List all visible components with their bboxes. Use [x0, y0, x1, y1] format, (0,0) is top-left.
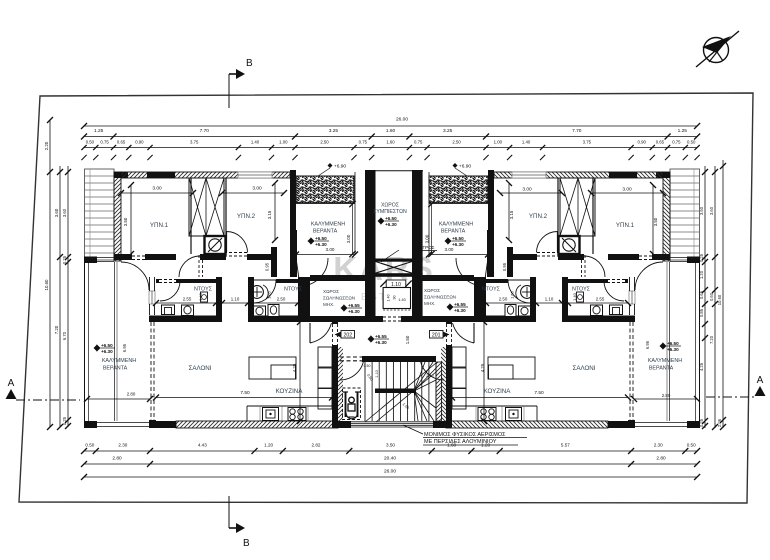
svg-text:ΚΟΥΖΙΝΑ: ΚΟΥΖΙΝΑ	[276, 388, 304, 395]
svg-text:0.60: 0.60	[709, 292, 714, 301]
svg-text:3.00: 3.00	[152, 186, 162, 192]
svg-text:3.50: 3.50	[123, 217, 128, 226]
svg-text:201: 201	[432, 333, 441, 339]
svg-text:3.00: 3.00	[346, 234, 351, 243]
svg-text:0.90: 0.90	[638, 140, 647, 145]
svg-text:+6.50: +6.50	[385, 216, 397, 221]
svg-text:ΥΓΡΟΣ: ΥΓΡΟΣ	[419, 245, 434, 250]
svg-text:ΚΟΥΖΙΝΑ: ΚΟΥΖΙΝΑ	[484, 388, 512, 395]
svg-text:6.70: 6.70	[62, 331, 67, 340]
svg-text:A: A	[757, 375, 764, 386]
svg-text:3.25: 3.25	[443, 128, 453, 134]
svg-text:ΚΑΛΥΜΜΕΝΗ: ΚΑΛΥΜΜΕΝΗ	[648, 358, 682, 364]
svg-text:3.00: 3.00	[522, 187, 532, 193]
svg-text:ΝΤΟΥΣ: ΝΤΟΥΣ	[482, 287, 501, 293]
svg-text:A: A	[8, 378, 15, 389]
svg-text:5.57: 5.57	[561, 443, 570, 448]
svg-text:1.25: 1.25	[678, 128, 688, 134]
svg-text:ΣΑΛΟΝΙ: ΣΑΛΟΝΙ	[189, 365, 212, 372]
svg-text:ΥΠΝ.1: ΥΠΝ.1	[150, 222, 169, 229]
svg-text:ΒΕΡΑΝΤΑ: ΒΕΡΑΝΤΑ	[313, 229, 338, 235]
svg-text:2.50: 2.50	[277, 297, 286, 302]
svg-text:1.65: 1.65	[267, 290, 272, 299]
svg-text:26.00: 26.00	[396, 117, 408, 123]
svg-text:+6.50: +6.50	[667, 341, 679, 346]
svg-text:1.10: 1.10	[231, 297, 240, 302]
svg-text:7.20: 7.20	[54, 325, 59, 334]
svg-text:+6.50: +6.50	[101, 343, 113, 348]
svg-text:ΧΩΡΟΣ: ΧΩΡΟΣ	[323, 289, 339, 294]
svg-text:1.10: 1.10	[375, 370, 379, 377]
svg-text:2.80: 2.80	[662, 393, 671, 398]
svg-text:2.50: 2.50	[452, 140, 461, 145]
svg-text:ΣΥΜΠΙΕΣΤΩΝ: ΣΥΜΠΙΕΣΤΩΝ	[373, 209, 407, 215]
svg-text:+6.30: +6.30	[385, 222, 397, 227]
svg-text:0.25: 0.25	[62, 255, 67, 264]
svg-text:4.43: 4.43	[198, 443, 207, 448]
svg-text:3.60: 3.60	[54, 208, 59, 217]
svg-text:7.20: 7.20	[709, 335, 714, 344]
svg-text:ΜΕ ΠΕΡΣΙΔΕΣ ΑΛΟΥΜΙΝΙΟΥ: ΜΕ ΠΕΡΣΙΔΕΣ ΑΛΟΥΜΙΝΙΟΥ	[424, 439, 497, 445]
svg-text:0.95: 0.95	[502, 262, 507, 271]
svg-text:1.40: 1.40	[198, 292, 203, 301]
svg-text:+6.50: +6.50	[315, 236, 327, 241]
svg-text:ΜΗΧ.: ΜΗΧ.	[323, 302, 334, 307]
svg-text:3.00: 3.00	[425, 234, 430, 243]
svg-text:+6.90: +6.90	[459, 164, 471, 170]
svg-text:B: B	[243, 538, 250, 549]
svg-text:ΜΗΧ.: ΜΗΧ.	[424, 301, 435, 306]
svg-text:4.25: 4.25	[480, 363, 485, 372]
svg-text:3.75: 3.75	[583, 140, 592, 145]
svg-text:2.80: 2.80	[127, 392, 136, 397]
svg-text:7.70: 7.70	[200, 128, 210, 134]
svg-text:3.60: 3.60	[709, 206, 714, 215]
svg-text:1.40: 1.40	[398, 298, 405, 302]
svg-text:2.55: 2.55	[596, 297, 605, 302]
svg-text:2.82: 2.82	[312, 443, 321, 448]
svg-text:+6.50: +6.50	[452, 236, 464, 241]
svg-text:ΒΕΡΑΝΤΑ: ΒΕΡΑΝΤΑ	[441, 229, 466, 235]
svg-text:ΚΑΛΥΜΜΕΝΗ: ΚΑΛΥΜΜΕΝΗ	[102, 358, 136, 364]
svg-text:1.25: 1.25	[94, 128, 104, 134]
svg-text:1.40: 1.40	[522, 140, 531, 145]
svg-text:2.30: 2.30	[654, 443, 663, 448]
svg-text:ΚΑΛΥΜΜΕΝΗ: ΚΑΛΥΜΜΕΝΗ	[439, 222, 473, 228]
svg-text:20.40: 20.40	[384, 456, 396, 462]
svg-text:+6.55: +6.55	[348, 303, 360, 308]
svg-text:7.50: 7.50	[534, 390, 544, 396]
svg-text:10.60: 10.60	[44, 279, 49, 291]
svg-text:6.95: 6.95	[645, 340, 650, 349]
svg-text:ΝΤΟΥΣ: ΝΤΟΥΣ	[194, 287, 213, 293]
svg-text:3.50: 3.50	[653, 217, 658, 226]
svg-text:2.55: 2.55	[183, 297, 192, 302]
svg-text:3.00: 3.00	[445, 247, 454, 252]
svg-text:2.50: 2.50	[320, 140, 329, 145]
svg-text:1.60: 1.60	[386, 128, 396, 134]
svg-text:+6.30: +6.30	[101, 349, 113, 354]
svg-text:7.50: 7.50	[240, 390, 250, 396]
svg-text:ΒΕΡΑΝΤΑ: ΒΕΡΑΝΤΑ	[103, 366, 128, 372]
svg-text:0.65: 0.65	[117, 140, 126, 145]
svg-text:2.10: 2.10	[426, 374, 433, 378]
svg-text:0.95: 0.95	[265, 262, 270, 271]
svg-text:ΧΩΡΟΣ: ΧΩΡΟΣ	[381, 203, 399, 209]
svg-text:ΣΑΛΟΝΙ: ΣΑΛΟΝΙ	[573, 365, 596, 372]
svg-text:0.50: 0.50	[687, 443, 696, 448]
svg-text:3.00: 3.00	[252, 186, 262, 192]
svg-text:+6.30: +6.30	[454, 308, 466, 313]
svg-text:0.50: 0.50	[86, 140, 95, 145]
svg-text:ΜΟΝΙΜΟΣ ΦΥΣΙΚΟΣ ΑΕΡΙΣΜΟΣ: ΜΟΝΙΜΟΣ ΦΥΣΙΚΟΣ ΑΕΡΙΣΜΟΣ	[424, 432, 506, 438]
svg-text:3.25: 3.25	[329, 128, 339, 134]
svg-text:ΣΩΛΗΝΩΣΕΩΝ: ΣΩΛΗΝΩΣΕΩΝ	[424, 295, 456, 300]
svg-text:1.20: 1.20	[264, 443, 273, 448]
svg-text:1.10: 1.10	[545, 297, 554, 302]
svg-text:2.30: 2.30	[118, 443, 127, 448]
svg-text:3.75: 3.75	[190, 140, 199, 145]
svg-text:0.25: 0.25	[62, 416, 67, 425]
svg-text:10.60: 10.60	[717, 294, 722, 305]
svg-text:ΥΠΝ.2: ΥΠΝ.2	[529, 213, 548, 220]
svg-text:3.00: 3.00	[622, 187, 632, 193]
svg-text:2.06: 2.06	[717, 418, 722, 427]
svg-text:3.00: 3.00	[326, 247, 335, 252]
svg-text:4.25: 4.25	[292, 363, 297, 372]
svg-text:0.50: 0.50	[85, 443, 94, 448]
svg-text:6.95: 6.95	[122, 343, 127, 352]
svg-text:+6.30: +6.30	[452, 242, 464, 247]
svg-text:26.00: 26.00	[384, 469, 396, 475]
svg-text:1.40: 1.40	[251, 140, 260, 145]
svg-text:+6.55: +6.55	[375, 334, 387, 339]
svg-text:ΒΕΡΑΝΤΑ: ΒΕΡΑΝΤΑ	[649, 366, 674, 372]
svg-text:202: 202	[343, 333, 352, 339]
svg-text:ΥΠΝ.1: ΥΠΝ.1	[616, 222, 635, 229]
svg-text:ΥΠΝ.2: ΥΠΝ.2	[237, 213, 256, 220]
svg-text:1.00: 1.00	[494, 140, 503, 145]
svg-text:3.50: 3.50	[386, 443, 395, 448]
svg-text:1.00: 1.00	[279, 140, 288, 145]
svg-text:1.40: 1.40	[387, 295, 391, 302]
svg-text:ΝΤΟΥΣ: ΝΤΟΥΣ	[572, 287, 591, 293]
svg-text:0.50: 0.50	[687, 140, 696, 145]
svg-text:.90: .90	[393, 296, 397, 301]
svg-text:7.70: 7.70	[572, 128, 582, 134]
svg-text:0.90: 0.90	[135, 140, 144, 145]
svg-text:0.75: 0.75	[414, 140, 423, 145]
svg-text:ΝΤΟΥΣ: ΝΤΟΥΣ	[284, 287, 303, 293]
svg-text:2.80: 2.80	[656, 456, 666, 462]
svg-text:2.50: 2.50	[499, 297, 508, 302]
svg-text:1.60: 1.60	[386, 140, 395, 145]
svg-text:1.50: 1.50	[405, 335, 410, 344]
svg-text:ΚΑΛΥΜΜΕΝΗ: ΚΑΛΥΜΜΕΝΗ	[311, 222, 345, 228]
svg-text:ΧΩΡΟΣ: ΧΩΡΟΣ	[424, 288, 440, 293]
svg-text:0.75: 0.75	[100, 140, 109, 145]
svg-text:+6.55: +6.55	[454, 302, 466, 307]
svg-text:1.10: 1.10	[391, 282, 401, 288]
svg-text:3.15: 3.15	[509, 210, 514, 219]
svg-text:3.60: 3.60	[62, 208, 67, 217]
svg-text:ΣΩΛΗΝΩΣΕΩΝ: ΣΩΛΗΝΩΣΕΩΝ	[323, 296, 355, 301]
svg-text:1.65: 1.65	[510, 290, 515, 299]
svg-text:+6.30: +6.30	[667, 347, 679, 352]
svg-text:0.65: 0.65	[656, 140, 665, 145]
svg-text:3.15: 3.15	[267, 210, 272, 219]
svg-text:2.20: 2.20	[44, 141, 49, 150]
svg-text:B: B	[246, 58, 253, 69]
svg-text:0.50: 0.50	[364, 364, 371, 368]
svg-text:+6.90: +6.90	[334, 164, 346, 170]
svg-text:+6.30: +6.30	[375, 340, 387, 345]
svg-text:0.75: 0.75	[672, 140, 681, 145]
svg-text:+6.30: +6.30	[348, 309, 360, 314]
svg-text:2.80: 2.80	[112, 456, 122, 462]
svg-text:0.75: 0.75	[359, 140, 368, 145]
svg-text:1.40: 1.40	[572, 292, 577, 301]
